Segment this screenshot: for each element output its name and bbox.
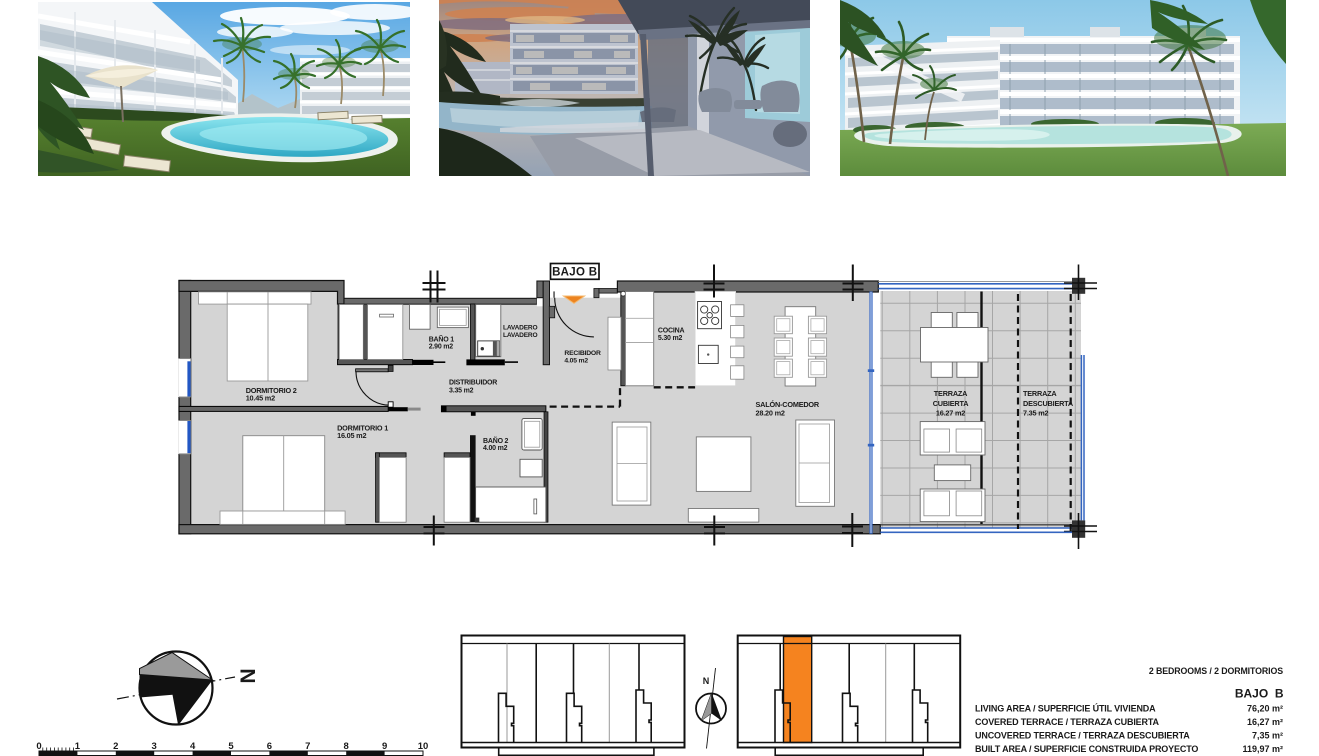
svg-text:16.05 m2: 16.05 m2 (337, 431, 366, 440)
svg-text:6: 6 (267, 741, 272, 752)
svg-text:4.00 m2: 4.00 m2 (483, 445, 508, 452)
svg-text:BAJO B: BAJO B (552, 267, 597, 279)
svg-text:RECIBIDOR: RECIBIDOR (564, 350, 601, 357)
svg-text:N: N (703, 676, 710, 686)
svg-text:3: 3 (152, 741, 157, 752)
svg-text:4: 4 (190, 741, 196, 752)
svg-text:UNCOVERED TERRACE / TERRAZA DE: UNCOVERED TERRACE / TERRAZA DESCUBIERTA (975, 731, 1190, 741)
svg-text:2.90 m2: 2.90 m2 (429, 344, 454, 351)
svg-text:BAJO B: BAJO B (1235, 687, 1284, 701)
svg-text:28.20 m2: 28.20 m2 (756, 408, 785, 417)
svg-text:10: 10 (418, 741, 429, 752)
svg-text:8: 8 (344, 741, 349, 752)
svg-text:0: 0 (36, 741, 41, 752)
svg-text:7: 7 (305, 741, 310, 752)
svg-text:5.30 m2: 5.30 m2 (658, 335, 683, 342)
svg-text:9: 9 (382, 741, 387, 752)
svg-text:DISTRIBUIDOR: DISTRIBUIDOR (449, 380, 497, 387)
svg-text:7,35 m²: 7,35 m² (1252, 731, 1283, 741)
svg-text:10.45 m2: 10.45 m2 (246, 394, 275, 403)
svg-text:1: 1 (75, 741, 81, 752)
svg-text:BAÑO 2: BAÑO 2 (483, 436, 509, 445)
svg-text:CUBIERTA: CUBIERTA (933, 399, 969, 408)
svg-text:LAVADERO: LAVADERO (503, 325, 537, 332)
svg-text:3.35 m2: 3.35 m2 (449, 387, 474, 394)
svg-text:COCINA: COCINA (658, 328, 685, 335)
svg-text:N: N (235, 668, 258, 683)
svg-text:119,97 m²: 119,97 m² (1242, 744, 1283, 754)
svg-text:COVERED TERRACE / TERRAZA CUBI: COVERED TERRACE / TERRAZA CUBIERTA (975, 717, 1160, 727)
svg-text:2: 2 (113, 741, 118, 752)
svg-text:BUILT AREA / SUPERFICIE CONSTR: BUILT AREA / SUPERFICIE CONSTRUIDA PROYE… (975, 744, 1198, 754)
svg-text:DESCUBIERTA: DESCUBIERTA (1023, 399, 1074, 408)
svg-text:7.35 m2: 7.35 m2 (1023, 408, 1049, 417)
svg-text:LIVING AREA / SUPERFICIE ÚTIL: LIVING AREA / SUPERFICIE ÚTIL VIVIENDA (975, 703, 1156, 714)
svg-text:5: 5 (228, 741, 234, 752)
svg-text:LAVADERO: LAVADERO (503, 332, 537, 339)
svg-text:TERRAZA: TERRAZA (934, 389, 968, 398)
svg-text:BAÑO 1: BAÑO 1 (429, 334, 455, 343)
svg-text:16,27 m²: 16,27 m² (1247, 717, 1283, 727)
svg-text:16.27 m2: 16.27 m2 (936, 408, 965, 417)
svg-text:2 BEDROOMS / 2 DORMITORIOS: 2 BEDROOMS / 2 DORMITORIOS (1149, 666, 1283, 676)
svg-text:4.05 m2: 4.05 m2 (564, 358, 588, 365)
svg-text:TERRAZA: TERRAZA (1023, 389, 1057, 398)
svg-text:76,20 m²: 76,20 m² (1247, 704, 1283, 714)
